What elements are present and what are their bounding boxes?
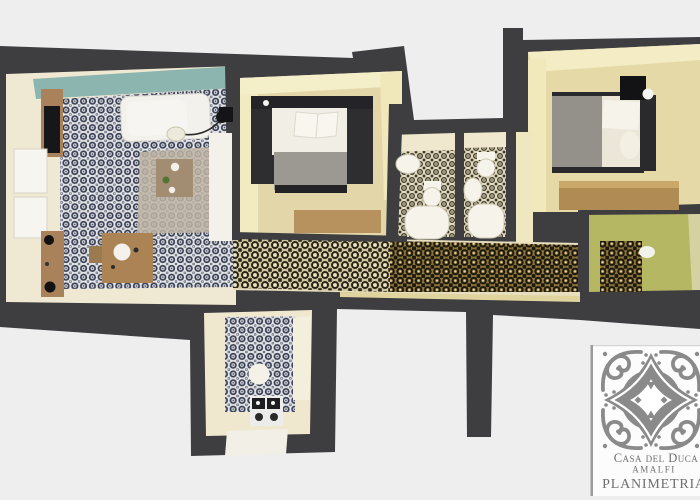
svg-text:Casa del Duca: Casa del Duca bbox=[614, 451, 699, 465]
svg-text:PLANIMETRIA: PLANIMETRIA bbox=[602, 477, 700, 492]
svg-text:AMALFI: AMALFI bbox=[632, 465, 676, 475]
